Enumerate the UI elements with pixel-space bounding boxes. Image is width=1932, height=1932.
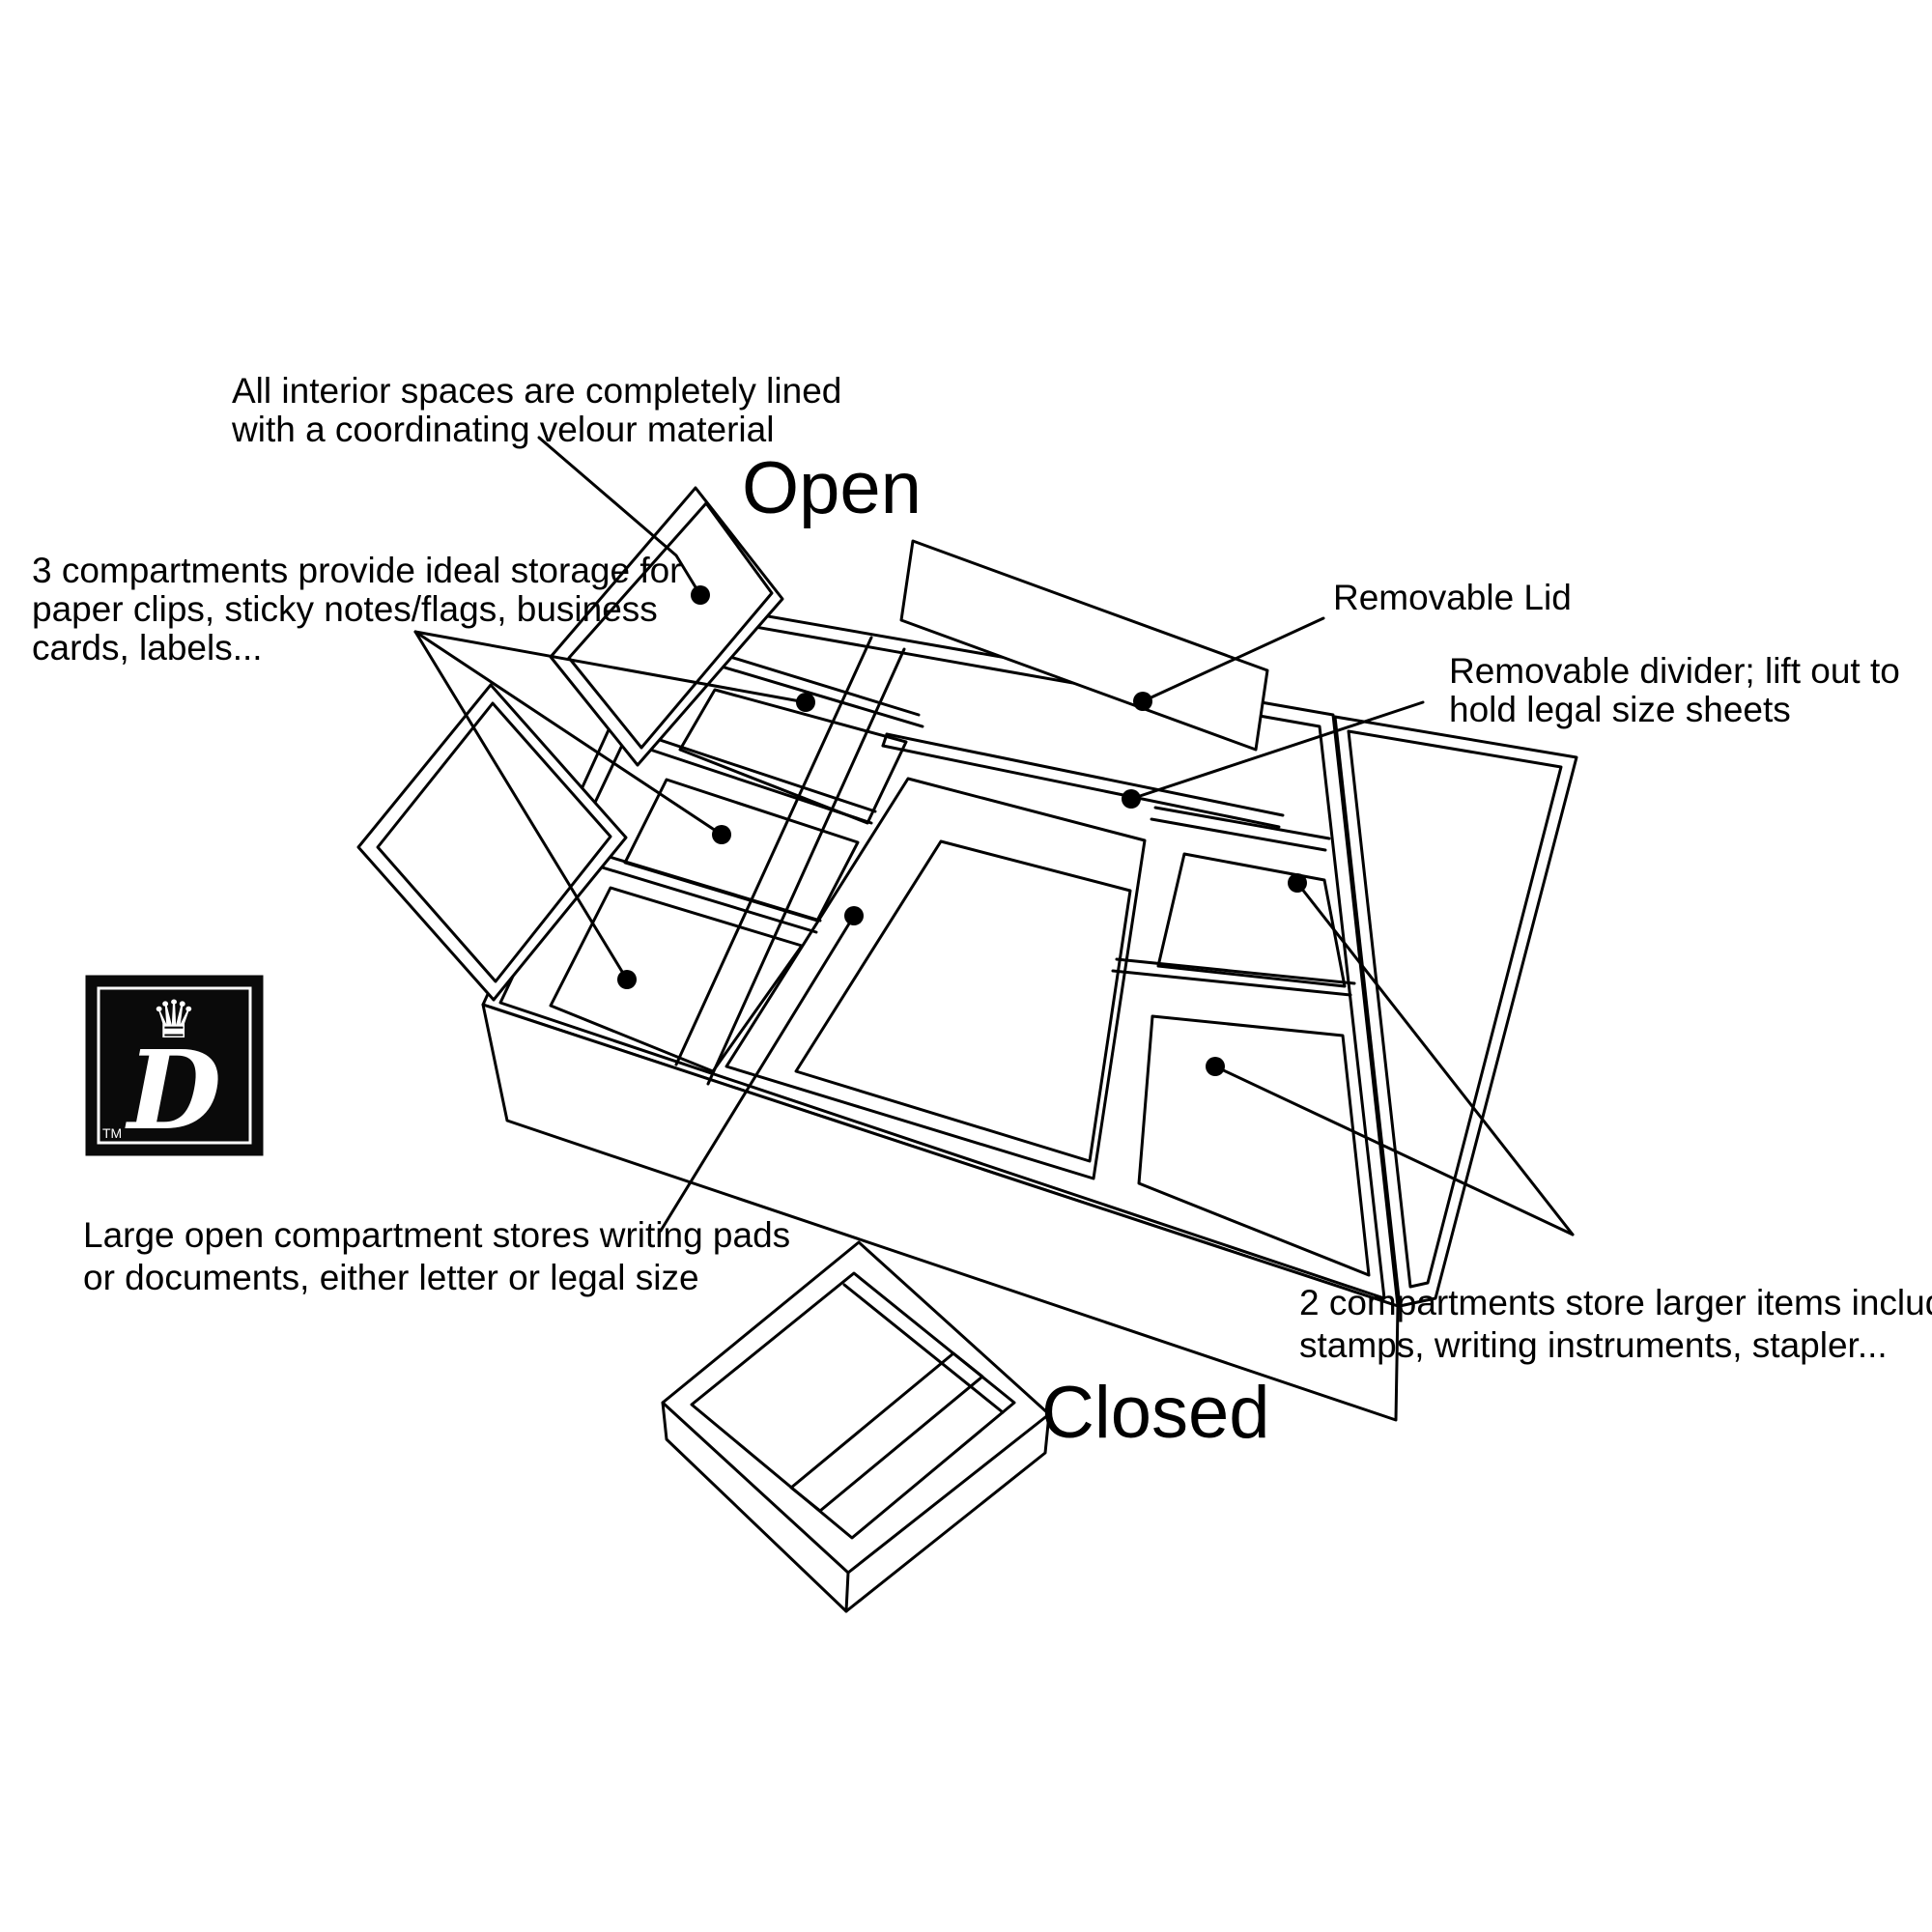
dot-large-compartment-1 [1288,873,1307,893]
dot-removable-lid [1133,692,1152,711]
annotation-velour: All interior spaces are completely lined… [231,371,841,449]
annotation-3-compartments-line2: paper clips, sticky notes/flags, busines… [32,589,658,629]
organizer-diagram-svg: Open Closed All interior spaces are comp… [0,0,1932,1932]
annotation-2-compartments-line2: stamps, writing instruments, stapler... [1299,1325,1888,1365]
annotation-3-compartments-line3: cards, labels... [32,628,263,668]
annotation-3-compartments-line1: 3 compartments provide ideal storage for [32,551,682,590]
dot-compartment-1 [796,693,815,712]
annotation-large-open-line1: Large open compartment stores writing pa… [83,1215,790,1255]
closed-box-drawing [663,1242,1049,1611]
annotation-divider-line1: Removable divider; lift out to [1449,651,1900,691]
diagram-page: Open Closed All interior spaces are comp… [0,0,1932,1932]
dot-large-open [844,906,864,925]
annotation-removable-lid: Removable Lid [1333,578,1572,617]
annotation-divider-line2: hold legal size sheets [1449,690,1791,729]
annotation-divider: Removable divider; lift out to hold lega… [1449,651,1900,729]
annotation-2-compartments-line1: 2 compartments store larger items includ… [1299,1283,1932,1322]
brand-logo: ♛ D TM [86,976,263,1155]
annotation-large-open: Large open compartment stores writing pa… [83,1215,790,1297]
annotation-velour-line1: All interior spaces are completely lined [232,371,841,411]
dot-large-compartment-2 [1206,1057,1225,1076]
annotation-large-open-line2: or documents, either letter or legal siz… [83,1258,699,1297]
dot-velour [691,585,710,605]
title-closed: Closed [1041,1372,1270,1454]
dot-divider [1122,789,1141,809]
logo-letter: D [125,1028,221,1154]
title-open: Open [742,447,922,529]
annotation-velour-line2: with a coordinating velour material [231,410,774,449]
dot-compartment-3 [617,970,637,989]
dot-compartment-2 [712,825,731,844]
logo-trademark: TM [102,1125,122,1141]
